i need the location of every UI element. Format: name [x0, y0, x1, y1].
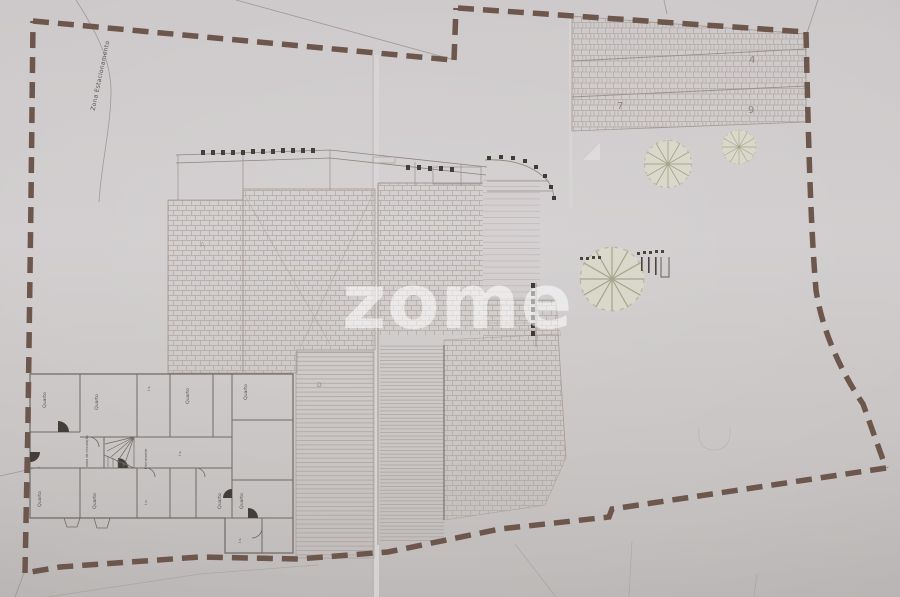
- room-label: Kitchenette: [144, 448, 148, 470]
- tree: [644, 140, 692, 188]
- tree: [722, 130, 757, 165]
- room-label: I.s.: [237, 537, 242, 543]
- plot-number-7: 7: [617, 101, 623, 112]
- floor-plan-outer-walls: [30, 374, 293, 553]
- parking-zone-label: Zona Estacionamento: [90, 40, 112, 111]
- room-label: Quarto: [37, 491, 43, 507]
- roof-mark-a: A: [200, 241, 205, 249]
- room-label: Quarto: [185, 388, 191, 404]
- deck-hatch: D: [296, 352, 374, 558]
- door-arcs: [89, 437, 262, 538]
- entry-steps: [64, 518, 110, 528]
- floor-plan: [30, 374, 293, 553]
- plot-number-9: 9: [748, 105, 754, 116]
- room-label: Quarto: [239, 493, 245, 509]
- room-labels: Quarto Quarto I.s. Quarto Quarto zona de…: [37, 384, 249, 543]
- room-label: Quarto: [94, 394, 100, 410]
- room-label: I.s.: [177, 450, 182, 456]
- roof-hatch-top-right: 4 7 9: [572, 16, 806, 131]
- tree: [580, 247, 645, 312]
- room-label: Quarto: [217, 493, 223, 509]
- column-marks: [201, 148, 454, 172]
- room-label: Quarto: [42, 392, 48, 408]
- room-label: zona de circulação: [85, 435, 89, 467]
- room-label: I.s.: [146, 385, 151, 391]
- site-plan-photo: 4 7 9 A D: [0, 0, 900, 597]
- trees: [580, 130, 757, 312]
- room-label: I.s.: [143, 499, 148, 505]
- roof-hatch-left: A: [168, 189, 375, 373]
- floor-plan-inner-walls: [30, 374, 293, 553]
- room-label: Quarto: [92, 493, 98, 509]
- sheet-corner-fold: [583, 143, 600, 160]
- roof-hatch-middle: [378, 176, 566, 545]
- plot-number-4: 4: [749, 55, 755, 66]
- plan-drawing: 4 7 9 A D: [0, 0, 900, 597]
- room-label: Quarto: [243, 384, 249, 400]
- deck-label: D: [317, 382, 322, 389]
